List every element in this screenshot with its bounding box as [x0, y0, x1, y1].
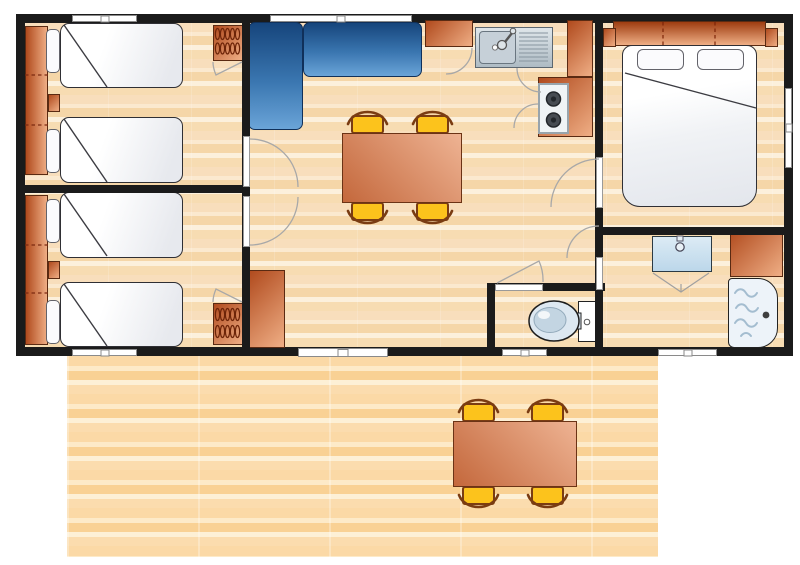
hanging-wardrobe-bedroom2 — [213, 303, 243, 345]
window-handle — [100, 349, 109, 356]
living-room-window — [270, 15, 412, 22]
bathroom-door-leaf — [596, 257, 603, 290]
door-handle — [338, 349, 349, 357]
entrance-sliding-door — [298, 348, 388, 357]
twin-bed-2 — [60, 117, 183, 183]
indoor-chair-3 — [351, 202, 384, 221]
window-handle — [337, 15, 346, 22]
headboard-storage — [613, 21, 766, 46]
pillow-twin-bed-2 — [46, 129, 60, 173]
nightstand-bedroom1 — [48, 94, 60, 112]
bedroom2-door-leaf — [243, 196, 250, 247]
outdoor-chair-3 — [462, 486, 495, 505]
bedroom1-door-leaf — [243, 136, 250, 187]
kitchen-cabinet — [425, 20, 473, 47]
living-cabinet — [248, 270, 285, 348]
bathroom-cabinet — [730, 228, 783, 277]
pillow-twin-bed-1 — [46, 29, 60, 73]
twin-bed-4 — [60, 282, 183, 347]
master-bedroom-window — [785, 88, 792, 168]
indoor-chair-4 — [416, 202, 449, 221]
shelf-wardrobe-bedroom2 — [25, 195, 48, 345]
master-door-leaf — [596, 157, 603, 208]
pillow-double-left — [637, 49, 684, 70]
indoor-chair-2 — [416, 115, 449, 134]
washbasin — [652, 236, 712, 272]
shelf-wardrobe-bedroom1 — [25, 26, 48, 175]
floor-plan — [0, 0, 800, 565]
headboard-block-left — [603, 28, 616, 47]
indoor-dining-table — [342, 133, 462, 203]
twin-bed-3 — [60, 192, 183, 258]
bathroom-window — [658, 349, 717, 356]
window-handle — [683, 349, 692, 356]
toilet-cistern — [578, 301, 596, 342]
corner-cabinet — [567, 20, 593, 77]
sink-bowl — [479, 31, 516, 64]
outdoor-chair-4 — [531, 486, 564, 505]
shower-tray — [728, 278, 778, 348]
outdoor-dining-table — [453, 421, 577, 487]
window-handle — [100, 15, 109, 22]
pillow-twin-bed-3 — [46, 199, 60, 243]
outdoor-chair-1 — [462, 403, 495, 422]
twin-bed-1 — [60, 23, 183, 88]
bedroom2-window — [72, 349, 137, 356]
wall-bathroom-left — [595, 235, 603, 356]
wc-window — [502, 349, 547, 356]
wall-bedroom-divider — [16, 185, 250, 193]
nightstand-bedroom2 — [48, 261, 60, 279]
outdoor-chair-2 — [531, 403, 564, 422]
headboard-block-right — [765, 28, 778, 47]
indoor-chair-1 — [351, 115, 384, 134]
pillow-double-right — [697, 49, 744, 70]
hanging-wardrobe-bedroom1 — [213, 25, 243, 61]
pillow-twin-bed-4 — [46, 300, 60, 344]
sofa-vertical-section — [248, 22, 303, 130]
two-burner-hob — [538, 83, 569, 134]
wc-door-leaf — [495, 284, 543, 291]
wall-wc-left — [487, 283, 495, 356]
window-handle — [785, 124, 792, 133]
wall-master-bottom — [595, 227, 793, 235]
bedroom1-window — [72, 15, 137, 22]
window-handle — [520, 349, 529, 356]
sofa-horizontal-section — [303, 22, 422, 77]
